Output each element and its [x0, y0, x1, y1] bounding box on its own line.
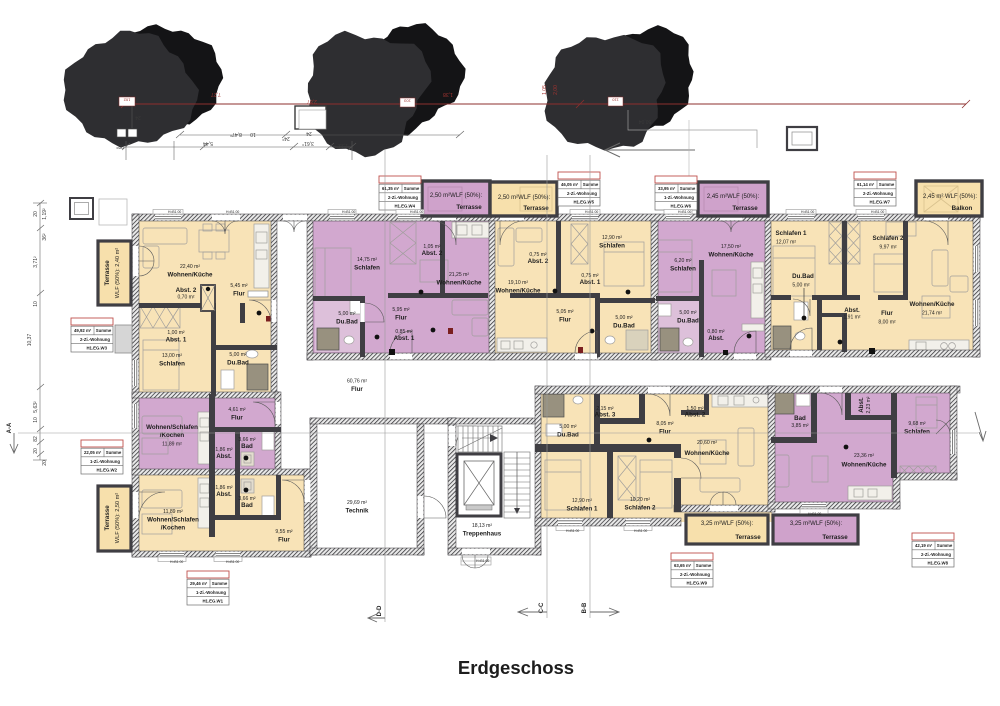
- svg-text:8,05 m²: 8,05 m²: [656, 421, 674, 427]
- svg-text:Du.Bad: Du.Bad: [227, 360, 249, 367]
- svg-text:103: 103: [403, 99, 410, 104]
- svg-text:7,27: 7,27: [211, 91, 221, 97]
- svg-text:29,69 m²: 29,69 m²: [347, 500, 367, 506]
- svg-text:5,00 m²: 5,00 m²: [229, 352, 247, 358]
- svg-text:H1.EG.W5: H1.EG.W5: [573, 199, 594, 204]
- svg-text:102: 102: [123, 98, 130, 103]
- svg-text:Abst.: Abst.: [858, 397, 865, 413]
- svg-text:Technik: Technik: [346, 508, 369, 515]
- svg-text:Du.Bad: Du.Bad: [557, 432, 579, 439]
- svg-text:36²: 36²: [42, 233, 48, 241]
- svg-text:Flur: Flur: [395, 315, 407, 322]
- svg-text:H1.EG.W8: H1.EG.W8: [927, 560, 948, 565]
- svg-text:Summe: Summe: [106, 450, 122, 455]
- svg-text:Du.Bad: Du.Bad: [792, 273, 814, 280]
- svg-text:Summe: Summe: [937, 543, 953, 548]
- svg-text:23,36 m²: 23,36 m²: [854, 453, 874, 459]
- svg-text:49,92 m²: 49,92 m²: [74, 328, 92, 333]
- svg-text:22,05 m²: 22,05 m²: [84, 450, 102, 455]
- svg-text:61,35 m²: 61,35 m²: [382, 186, 400, 191]
- svg-text:20: 20: [42, 460, 48, 466]
- svg-text:2-Zi.-Wohnung: 2-Zi.-Wohnung: [680, 572, 710, 577]
- svg-text:Summe: Summe: [404, 186, 420, 191]
- svg-text:0,70 m²: 0,70 m²: [178, 295, 195, 301]
- svg-text:Schlafen: Schlafen: [159, 361, 185, 368]
- svg-text:Flur: Flur: [659, 429, 671, 436]
- svg-text:Du.Bad: Du.Bad: [613, 323, 635, 330]
- svg-text:Wohnen/Küche: Wohnen/Küche: [910, 301, 955, 308]
- svg-text:/Kochen: /Kochen: [161, 525, 186, 532]
- svg-text:12,90 m²: 12,90 m²: [602, 235, 622, 241]
- svg-text:H1.EG.W6: H1.EG.W6: [670, 203, 691, 208]
- svg-text:6,20 m²: 6,20 m²: [674, 258, 692, 264]
- svg-text:H=B1 00: H=B1 00: [226, 210, 239, 214]
- svg-text:Terrasse: Terrasse: [104, 505, 111, 531]
- svg-text:33,95 m²: 33,95 m²: [658, 186, 676, 191]
- svg-text:1,05: 1,05: [542, 85, 548, 95]
- svg-text:H=B1 00: H=B1 00: [678, 210, 691, 214]
- svg-text:H=B1 00: H=B1 00: [808, 512, 821, 516]
- svg-text:20: 20: [33, 211, 39, 217]
- svg-text:5,00 m²: 5,00 m²: [559, 424, 577, 430]
- svg-text:10: 10: [33, 301, 39, 307]
- svg-text:D-D: D-D: [377, 605, 383, 616]
- svg-text:5,44: 5,44: [203, 140, 213, 146]
- svg-text:H=B1 00: H=B1 00: [566, 529, 579, 533]
- svg-text:10,37: 10,37: [27, 334, 33, 347]
- svg-text:2-Zi.-Wohnung: 2-Zi.-Wohnung: [388, 195, 418, 200]
- svg-text:14,75 m²: 14,75 m²: [357, 257, 377, 263]
- svg-text:61,14 m²: 61,14 m²: [857, 182, 875, 187]
- svg-text:Schlafen: Schlafen: [599, 243, 625, 250]
- svg-text:H=B1 00: H=B1 00: [342, 210, 355, 214]
- svg-text:Flur: Flur: [231, 415, 243, 422]
- svg-text:3,25 m²WLF (50%):: 3,25 m²WLF (50%):: [790, 521, 843, 527]
- svg-text:5,00 m²: 5,00 m²: [792, 283, 810, 289]
- svg-text:Abst. 1: Abst. 1: [394, 335, 415, 342]
- svg-text:H1.EG.W1: H1.EG.W1: [202, 598, 223, 603]
- svg-text:1,00 m²: 1,00 m²: [167, 330, 185, 336]
- svg-text:3,71²: 3,71²: [33, 256, 39, 268]
- svg-text:10: 10: [33, 417, 39, 423]
- svg-text:Flur: Flur: [278, 537, 290, 544]
- svg-text:Summe: Summe: [696, 563, 712, 568]
- svg-text:12,90 m²: 12,90 m²: [572, 498, 592, 504]
- svg-text:H=B1 00: H=B1 00: [226, 560, 239, 564]
- svg-text:Bad: Bad: [241, 502, 253, 509]
- svg-text:Schlafen 2: Schlafen 2: [873, 235, 905, 242]
- svg-text:Abst.: Abst.: [844, 307, 860, 314]
- svg-text:H1.EG.W3: H1.EG.W3: [86, 345, 107, 350]
- svg-text:2-Zi.-Wohnung: 2-Zi.-Wohnung: [921, 552, 951, 557]
- svg-text:Du.Bad: Du.Bad: [336, 319, 358, 326]
- svg-text:Terrasse: Terrasse: [822, 534, 848, 541]
- svg-text:Summe: Summe: [212, 581, 228, 586]
- svg-text:WLF (50%): 2,50 m²: WLF (50%): 2,50 m²: [115, 493, 121, 543]
- svg-text:5,95 m²: 5,95 m²: [392, 307, 410, 313]
- svg-text:H=B1 00: H=B1 00: [871, 210, 884, 214]
- svg-text:8,47°: 8,47°: [230, 131, 242, 137]
- svg-text:11,89 m²: 11,89 m²: [162, 442, 182, 448]
- svg-text:Summe: Summe: [680, 186, 696, 191]
- svg-text:Abst. 2: Abst. 2: [422, 250, 443, 257]
- svg-text:2,00: 2,00: [553, 85, 559, 95]
- svg-text:2,45 m² WLF (50%):: 2,45 m² WLF (50%):: [923, 194, 977, 200]
- svg-text:Flur: Flur: [233, 291, 245, 298]
- svg-text:8,00 m²: 8,00 m²: [878, 320, 896, 326]
- svg-text:3,25 m²WLF (50%):: 3,25 m²WLF (50%):: [701, 521, 754, 527]
- svg-text:Wohnen/Küche: Wohnen/Küche: [842, 462, 887, 469]
- svg-text:18,13 m²: 18,13 m²: [472, 523, 492, 529]
- svg-text:2,45 m²WLF (50%):: 2,45 m²WLF (50%):: [707, 194, 760, 200]
- svg-text:1-Zi.-Wohnung: 1-Zi.-Wohnung: [90, 459, 120, 464]
- svg-text:5,05 m²: 5,05 m²: [556, 309, 574, 315]
- svg-text:Summe: Summe: [879, 182, 895, 187]
- svg-text:WLF (50%): 2,40 m²: WLF (50%): 2,40 m²: [115, 248, 121, 298]
- svg-text:Terrasse: Terrasse: [732, 205, 758, 212]
- svg-text:A-A: A-A: [7, 422, 13, 433]
- svg-text:Terrasse: Terrasse: [104, 260, 111, 286]
- svg-text:H1.EG.W4: H1.EG.W4: [394, 203, 415, 208]
- svg-text:Abst. 1: Abst. 1: [166, 337, 187, 344]
- svg-text:2,23 m²: 2,23 m²: [866, 396, 872, 413]
- svg-text:Abst. 2: Abst. 2: [528, 258, 549, 265]
- svg-text:24: 24: [135, 114, 141, 120]
- svg-text:Abst. 2: Abst. 2: [685, 412, 706, 419]
- svg-text:Wohnen/Küche: Wohnen/Küche: [437, 280, 482, 287]
- svg-text:Flur: Flur: [881, 310, 893, 317]
- svg-text:Flur: Flur: [559, 317, 571, 324]
- svg-text:2,50 m²WLF (50%):: 2,50 m²WLF (50%):: [430, 193, 483, 199]
- svg-text:H1.EG.W9: H1.EG.W9: [686, 580, 707, 585]
- svg-text:Treppenhaus: Treppenhaus: [463, 531, 502, 538]
- svg-text:Schlafen 1: Schlafen 1: [776, 230, 808, 237]
- svg-text:Erdgeschoss: Erdgeschoss: [458, 657, 574, 678]
- svg-text:9,55 m²: 9,55 m²: [275, 529, 293, 535]
- svg-text:Bad: Bad: [241, 443, 253, 450]
- svg-text:19,10 m²: 19,10 m²: [508, 280, 528, 286]
- svg-text:12,07 m²: 12,07 m²: [776, 240, 796, 246]
- svg-text:5,63²: 5,63²: [33, 401, 39, 413]
- svg-text:H=B1 00: H=B1 00: [585, 210, 598, 214]
- svg-text:2-Zi.-Wohnung: 2-Zi.-Wohnung: [80, 337, 110, 342]
- svg-text:Summe: Summe: [583, 182, 599, 187]
- svg-text:110: 110: [612, 98, 619, 103]
- svg-text:Schlafen: Schlafen: [670, 266, 696, 273]
- svg-text:Wohnen/Küche: Wohnen/Küche: [168, 272, 213, 279]
- svg-text:82: 82: [33, 436, 39, 442]
- svg-text:3,85 m²: 3,85 m²: [791, 423, 809, 429]
- svg-text:H1.EG.W2: H1.EG.W2: [96, 467, 117, 472]
- svg-text:Terrasse: Terrasse: [456, 204, 482, 211]
- svg-text:4,61 m²: 4,61 m²: [228, 407, 246, 413]
- svg-text:24°: 24°: [282, 135, 290, 141]
- svg-text:92°: 92°: [116, 143, 124, 149]
- svg-text:5,00 m²: 5,00 m²: [615, 315, 633, 321]
- svg-text:9,97 m²: 9,97 m²: [879, 245, 897, 251]
- svg-text:13,00 m²: 13,00 m²: [162, 353, 182, 359]
- svg-text:Abst.: Abst.: [708, 335, 724, 342]
- svg-text:60,76 m²: 60,76 m²: [347, 379, 367, 385]
- svg-text:63,65 m²: 63,65 m²: [674, 563, 692, 568]
- svg-text:11,89 m²: 11,89 m²: [163, 509, 183, 515]
- svg-text:42,19 m²: 42,19 m²: [915, 543, 933, 548]
- svg-text:Wohnen/Küche: Wohnen/Küche: [496, 288, 541, 295]
- svg-text:B-B: B-B: [582, 602, 588, 613]
- svg-text:Schlafen: Schlafen: [354, 265, 380, 272]
- svg-text:H=B1 00: H=B1 00: [410, 210, 423, 214]
- svg-text:Balkon: Balkon: [952, 205, 973, 212]
- svg-text:H=B1 00: H=B1 00: [168, 210, 181, 214]
- svg-text:Wohnen/Küche: Wohnen/Küche: [709, 252, 754, 259]
- svg-text:Wohnen/Schlafen: Wohnen/Schlafen: [147, 517, 199, 524]
- svg-text:Wohnen/Küche: Wohnen/Küche: [685, 450, 730, 457]
- svg-text:3,61°: 3,61°: [302, 140, 314, 146]
- svg-text:Bad: Bad: [794, 415, 806, 422]
- svg-text:Du.Bad: Du.Bad: [677, 318, 699, 325]
- svg-text:5,45 m²: 5,45 m²: [230, 283, 248, 289]
- svg-text:9,68 m²: 9,68 m²: [908, 421, 926, 427]
- svg-text:10: 10: [250, 131, 256, 137]
- svg-text:H=B1 00: H=B1 00: [801, 210, 814, 214]
- svg-text:1-Zi.-Wohnung: 1-Zi.-Wohnung: [664, 195, 694, 200]
- svg-text:Schlafen: Schlafen: [904, 429, 930, 436]
- svg-text:22,40 m²: 22,40 m²: [180, 264, 200, 270]
- svg-text:1,91 m²: 1,91 m²: [844, 315, 861, 321]
- svg-text:20: 20: [33, 448, 39, 454]
- svg-text:50,04: 50,04: [639, 118, 652, 124]
- svg-text:1,22°: 1,22°: [336, 142, 348, 148]
- svg-text:2-Zi.-Wohnung: 2-Zi.-Wohnung: [863, 191, 893, 196]
- svg-text:10,20 m²: 10,20 m²: [630, 497, 650, 503]
- svg-text:2,87: 2,87: [307, 98, 317, 104]
- svg-text:H=B1 00: H=B1 00: [170, 560, 183, 564]
- svg-text:Abst.: Abst.: [216, 453, 232, 460]
- svg-text:H=B1 00: H=B1 00: [476, 559, 489, 563]
- svg-text:H=B1 00: H=B1 00: [634, 529, 647, 533]
- svg-text:2-Zi.-Wohnung: 2-Zi.-Wohnung: [567, 191, 597, 196]
- svg-text:5,00 m²: 5,00 m²: [679, 310, 697, 316]
- svg-text:Abst.: Abst.: [216, 491, 232, 498]
- svg-text:1,19²: 1,19²: [42, 208, 48, 220]
- svg-text:H1.EG.W7: H1.EG.W7: [869, 199, 890, 204]
- svg-text:21,74 m²: 21,74 m²: [922, 311, 942, 317]
- svg-text:17,50 m²: 17,50 m²: [721, 244, 741, 250]
- svg-text:Schlafen 2: Schlafen 2: [625, 505, 657, 512]
- svg-text:Terrasse: Terrasse: [523, 205, 549, 212]
- svg-text:Abst. 2: Abst. 2: [176, 287, 197, 294]
- svg-text:1,38: 1,38: [443, 91, 453, 97]
- svg-text:46,05 m²: 46,05 m²: [561, 182, 579, 187]
- svg-text:20,60 m²: 20,60 m²: [697, 440, 717, 446]
- svg-text:Terrasse: Terrasse: [735, 534, 761, 541]
- svg-text:Flur: Flur: [351, 386, 363, 393]
- svg-text:1-Zi.-Wohnung: 1-Zi.-Wohnung: [196, 590, 226, 595]
- svg-text:Wohnen/Schlafen: Wohnen/Schlafen: [146, 424, 198, 431]
- svg-text:Schlafen 1: Schlafen 1: [567, 506, 599, 513]
- svg-text:Summe: Summe: [96, 328, 112, 333]
- svg-text:29,46 m²: 29,46 m²: [190, 581, 208, 586]
- svg-text:21,25 m²: 21,25 m²: [449, 272, 469, 278]
- svg-text:2,50 m²WLF (50%):: 2,50 m²WLF (50%):: [498, 195, 551, 201]
- svg-text:Abst. 3: Abst. 3: [595, 412, 616, 419]
- svg-text:5,00 m²: 5,00 m²: [338, 311, 356, 317]
